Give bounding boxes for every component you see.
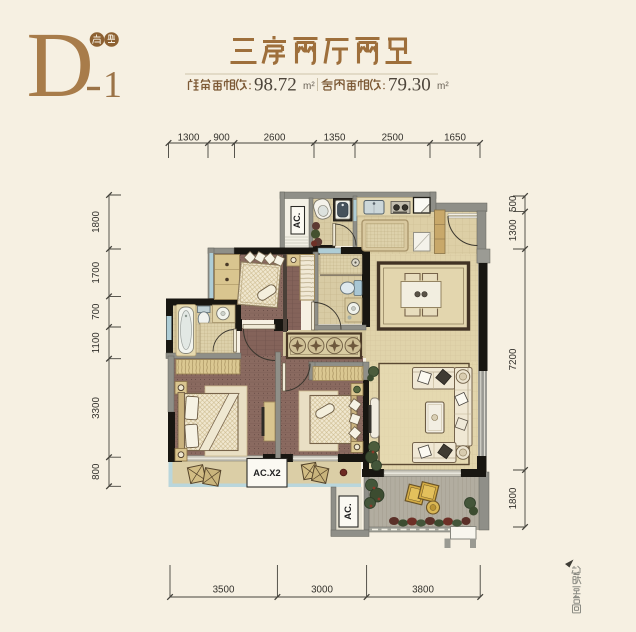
svg-text:D: D <box>27 14 94 117</box>
svg-text:1100: 1100 <box>91 332 102 354</box>
svg-text:98.72: 98.72 <box>254 75 297 96</box>
svg-text:AC.X2: AC.X2 <box>253 468 280 478</box>
svg-text:1800: 1800 <box>91 211 102 233</box>
svg-text:700: 700 <box>91 303 102 320</box>
svg-text:AC.: AC. <box>292 213 302 229</box>
svg-text:m²: m² <box>303 81 315 92</box>
svg-text:3300: 3300 <box>91 397 102 419</box>
svg-text:m²: m² <box>437 81 449 92</box>
svg-text:2500: 2500 <box>382 133 404 144</box>
svg-text:AC.: AC. <box>343 503 354 519</box>
svg-text:1300: 1300 <box>178 133 200 144</box>
svg-text:1: 1 <box>103 64 122 106</box>
svg-text:79.30: 79.30 <box>388 75 431 96</box>
svg-text:1800: 1800 <box>508 487 519 509</box>
svg-text:900: 900 <box>213 133 230 144</box>
svg-text:3800: 3800 <box>412 585 434 596</box>
svg-text:1300: 1300 <box>508 219 519 241</box>
svg-text:3000: 3000 <box>311 585 333 596</box>
svg-text:1700: 1700 <box>91 261 102 283</box>
svg-text:1650: 1650 <box>444 133 466 144</box>
svg-text:500: 500 <box>508 195 519 212</box>
svg-text:2600: 2600 <box>264 133 286 144</box>
svg-text:1350: 1350 <box>324 133 346 144</box>
svg-text:7200: 7200 <box>508 348 519 370</box>
svg-text:3500: 3500 <box>213 585 235 596</box>
svg-text:800: 800 <box>91 463 102 480</box>
